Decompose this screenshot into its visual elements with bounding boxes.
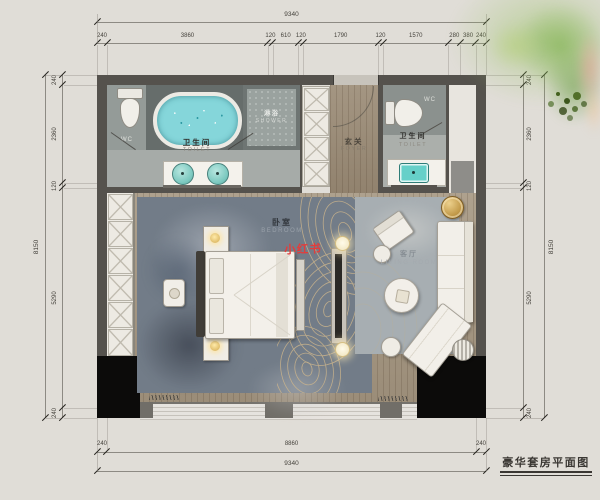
dim-label: 1790 — [334, 33, 347, 39]
dim-line — [303, 45, 304, 75]
dim-line — [524, 418, 543, 419]
dim-line — [46, 75, 61, 76]
drawing-title: 豪华套房平面图 — [498, 454, 594, 470]
dim-line — [486, 183, 522, 184]
dim-line — [486, 418, 522, 419]
dim-label: 2360 — [52, 127, 58, 140]
dim-line — [298, 45, 299, 75]
dim-line — [268, 45, 269, 75]
dim-line — [486, 418, 487, 450]
dim-label: 610 — [281, 33, 291, 39]
dim-label: 5290 — [52, 291, 58, 304]
dim-line — [544, 75, 545, 418]
dim-line — [64, 75, 97, 76]
dim-label: 120 — [375, 33, 385, 39]
foliage-decoration — [488, 22, 543, 70]
dim-label: 240 — [476, 441, 486, 447]
dim-label: 2360 — [527, 127, 533, 140]
dim-line — [486, 408, 522, 409]
dim-line — [97, 471, 486, 472]
dim-line — [107, 418, 108, 450]
dim-line — [486, 188, 522, 189]
title-underline-thin — [500, 475, 592, 476]
dim-label: 240 — [97, 441, 107, 447]
dim-label: 8150 — [549, 239, 556, 253]
dim-line — [273, 45, 274, 75]
dim-label: 240 — [527, 408, 533, 418]
dim-line — [523, 75, 524, 418]
dim-line — [97, 14, 98, 43]
dim-line — [383, 45, 384, 75]
dim-label: 9340 — [284, 461, 298, 468]
dim-line — [378, 45, 379, 75]
dim-line — [64, 188, 97, 189]
dim-line — [97, 453, 98, 471]
dim-line — [45, 75, 46, 418]
dim-label: 240 — [52, 408, 58, 418]
dim-label: 3860 — [181, 33, 194, 39]
dim-line — [62, 75, 63, 418]
dim-label: 120 — [296, 33, 306, 39]
dim-label: 120 — [265, 33, 275, 39]
dim-line — [64, 418, 97, 419]
flower-decoration — [584, 86, 600, 134]
dim-label: 120 — [52, 181, 58, 191]
dim-line — [97, 43, 486, 44]
dim-label: 120 — [527, 181, 533, 191]
dim-label: 240 — [97, 33, 107, 39]
title-underline-thick — [500, 471, 592, 473]
dim-line — [64, 85, 97, 86]
dim-line — [97, 45, 98, 75]
dim-label: 9340 — [284, 12, 298, 19]
dim-line — [97, 452, 486, 453]
dim-label: 240 — [52, 75, 58, 85]
dim-line — [46, 418, 61, 419]
dim-label: 8860 — [285, 441, 298, 447]
dim-label: 8150 — [34, 239, 41, 253]
dim-line — [107, 45, 108, 75]
dim-label: 1570 — [409, 33, 422, 39]
dim-line — [64, 183, 97, 184]
dim-line — [97, 22, 486, 23]
dim-label: 5290 — [527, 291, 533, 304]
foliage-speckles — [556, 92, 560, 96]
dim-line — [64, 408, 97, 409]
drawing-title-text: 豪华套房平面图 — [502, 457, 590, 469]
dim-line — [486, 453, 487, 471]
